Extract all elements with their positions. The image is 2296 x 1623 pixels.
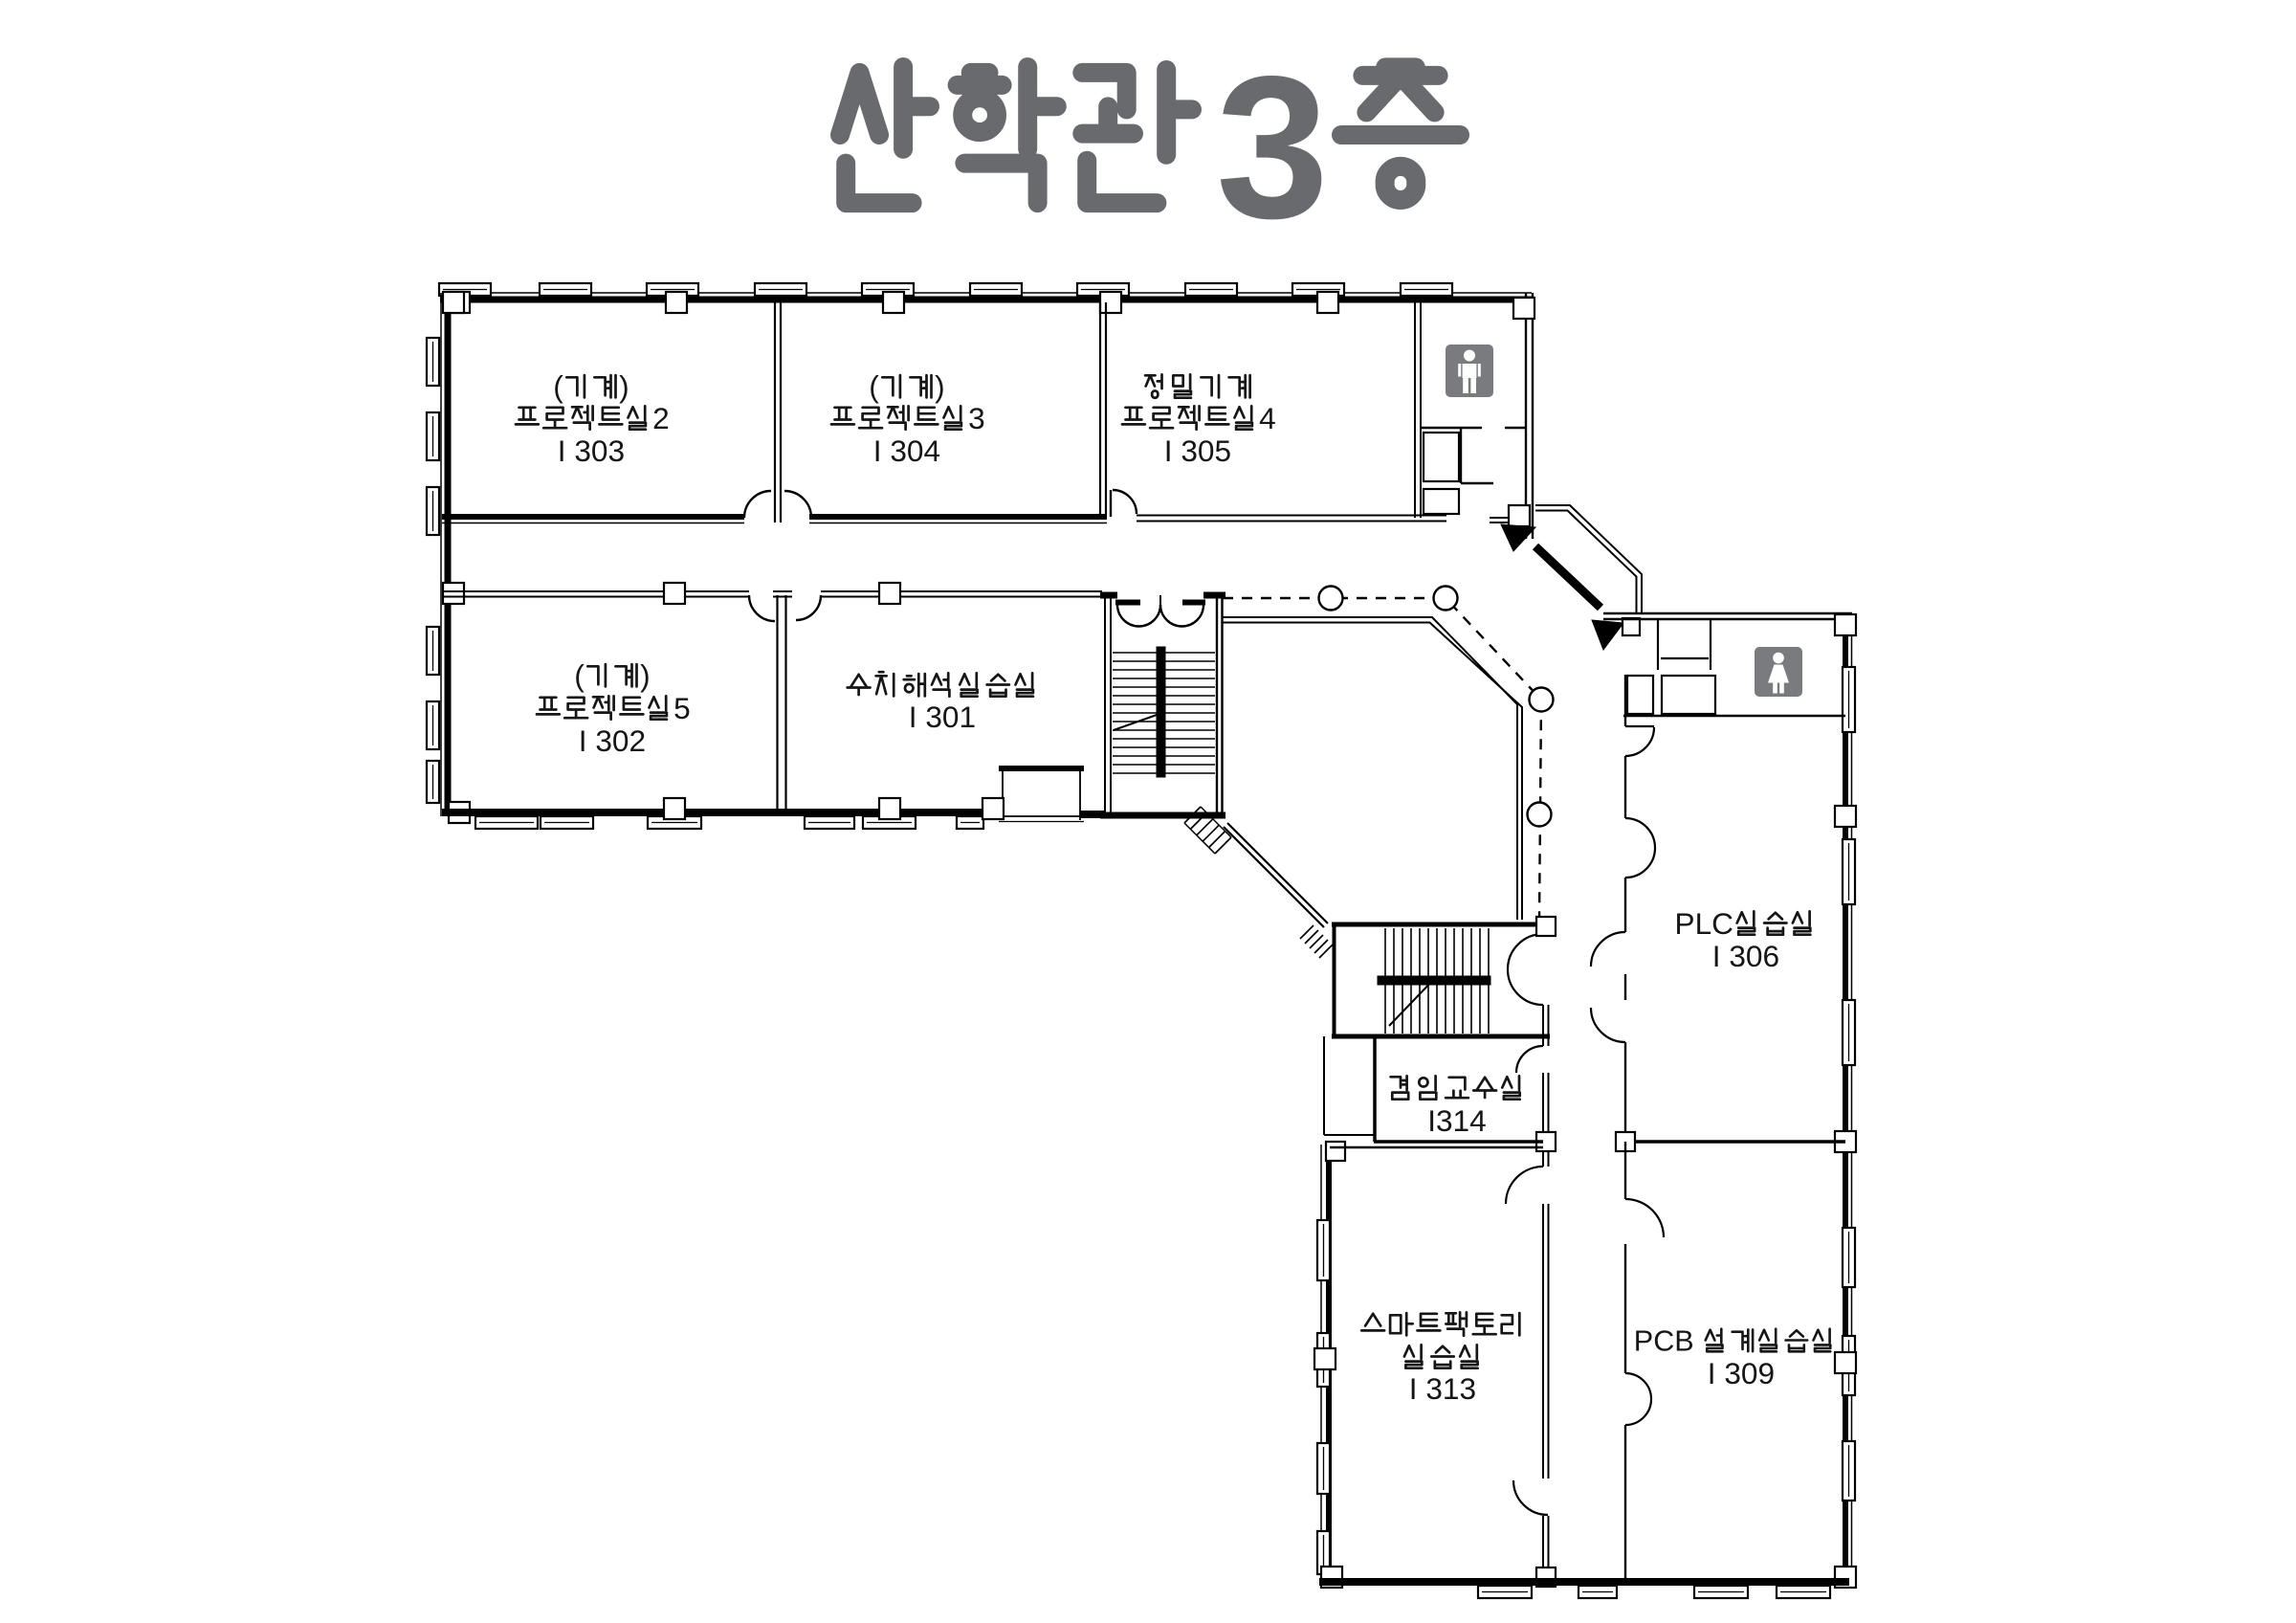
svg-text:I 306: I 306 [1712,939,1779,973]
svg-text:I 313: I 313 [1409,1371,1476,1406]
svg-text:I 301: I 301 [909,700,976,734]
svg-text:3: 3 [968,401,985,435]
svg-text:): ) [619,369,629,404]
svg-text:): ) [640,658,651,693]
svg-text:3: 3 [1216,33,1329,260]
svg-text:I 302: I 302 [579,723,646,758]
svg-text:I 305: I 305 [1164,434,1231,468]
svg-text:PCB: PCB [1634,1325,1694,1358]
svg-text:I 309: I 309 [1708,1356,1775,1390]
svg-text:I 304: I 304 [873,434,940,468]
svg-text:5: 5 [673,691,691,725]
svg-text:2: 2 [652,401,670,435]
svg-text:(: ( [574,658,585,693]
svg-text:I 303: I 303 [558,434,625,468]
svg-text:PLC: PLC [1675,906,1733,941]
svg-text:(: ( [869,369,879,404]
svg-text:4: 4 [1259,401,1276,435]
svg-text:(: ( [553,369,563,404]
svg-text:I314: I314 [1427,1103,1487,1138]
svg-text:): ) [935,369,945,404]
